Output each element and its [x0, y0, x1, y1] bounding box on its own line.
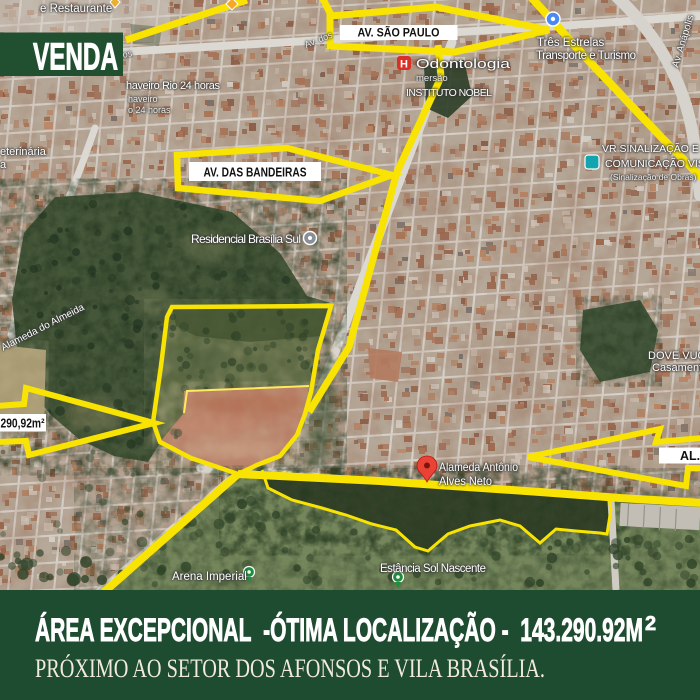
- svg-text:e Restaurante: e Restaurante: [40, 3, 112, 15]
- svg-text:Alves Neto: Alves Neto: [439, 474, 492, 488]
- svg-text:VENDA: VENDA: [33, 37, 118, 79]
- svg-text:INSTITUTO NOBEL: INSTITUTO NOBEL: [406, 87, 492, 99]
- svg-text:AV. DAS BANDEIRAS: AV. DAS BANDEIRAS: [204, 165, 307, 180]
- svg-text:PRÓXIMO AO SETOR DOS AFONSOS E: PRÓXIMO AO SETOR DOS AFONSOS E VILA BRAS…: [35, 654, 545, 683]
- svg-text:COMUNICAÇÃO VISU: COMUNICAÇÃO VISU: [605, 157, 700, 170]
- svg-text:AV. SÃO PAULO: AV. SÃO PAULO: [358, 25, 440, 40]
- svg-text:AL.: AL.: [680, 449, 700, 463]
- svg-text:Casamento: Casamento: [652, 362, 700, 374]
- svg-text:290,92m²: 290,92m²: [1, 416, 46, 431]
- svg-text:Estância Sol Nascente: Estância Sol Nascente: [380, 563, 486, 575]
- svg-text:H: H: [400, 59, 408, 71]
- svg-text:(Sinalização de Obras): (Sinalização de Obras): [610, 172, 697, 182]
- svg-text:Residencial Brasília Sul: Residencial Brasília Sul: [191, 232, 301, 246]
- svg-text:mersão: mersão: [416, 73, 448, 84]
- svg-text:haveiro: haveiro: [128, 94, 158, 104]
- svg-text:Alameda Antônio: Alameda Antônio: [439, 460, 518, 474]
- svg-text:DOVE VUO: DOVE VUO: [648, 350, 700, 362]
- svg-text:2: 2: [645, 613, 656, 635]
- svg-text:ÁREA EXCEPCIONAL -ÓTIMA LOCAL: ÁREA EXCEPCIONAL -ÓTIMA LOCALIZAÇÃO - 14…: [35, 611, 643, 648]
- svg-text:Arena Imperial: Arena Imperial: [172, 571, 247, 583]
- svg-text:Três Estrelas: Três Estrelas: [537, 37, 605, 49]
- svg-text:o 24 horas: o 24 horas: [128, 105, 171, 115]
- svg-text:eterinária: eterinária: [0, 146, 47, 158]
- svg-text:a: a: [0, 159, 7, 171]
- svg-text:VR SINALIZAÇÃO E: VR SINALIZAÇÃO E: [602, 142, 699, 155]
- svg-text:haveiro Rio 24 horas: haveiro Rio 24 horas: [126, 80, 221, 92]
- svg-text:Transporte e Turismo: Transporte e Turismo: [536, 50, 636, 62]
- svg-text:Odontologia: Odontologia: [416, 56, 511, 71]
